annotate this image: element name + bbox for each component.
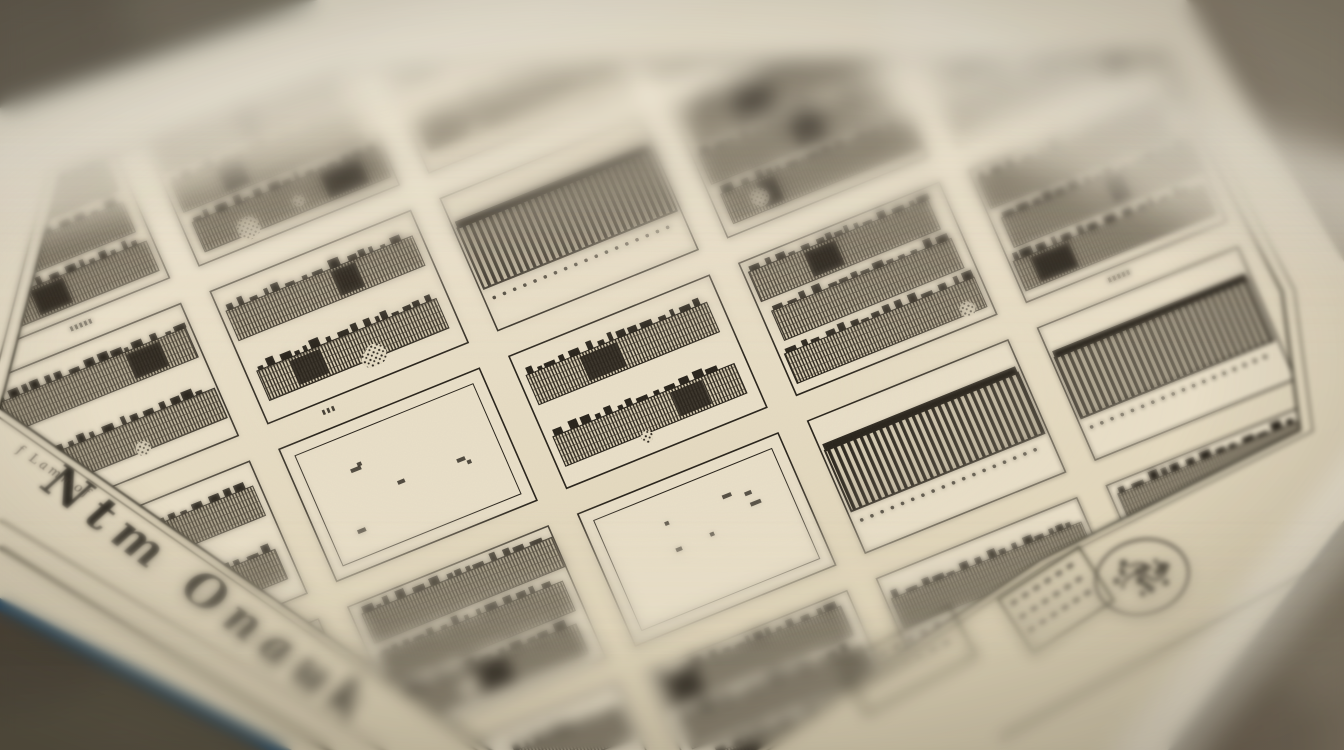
engraved-map-photo: Ntm Onauk f Lammof [0, 0, 1344, 750]
photo-scene: Ntm Onauk f Lammof [0, 0, 1344, 750]
film-grain-overlay [0, 0, 1344, 750]
